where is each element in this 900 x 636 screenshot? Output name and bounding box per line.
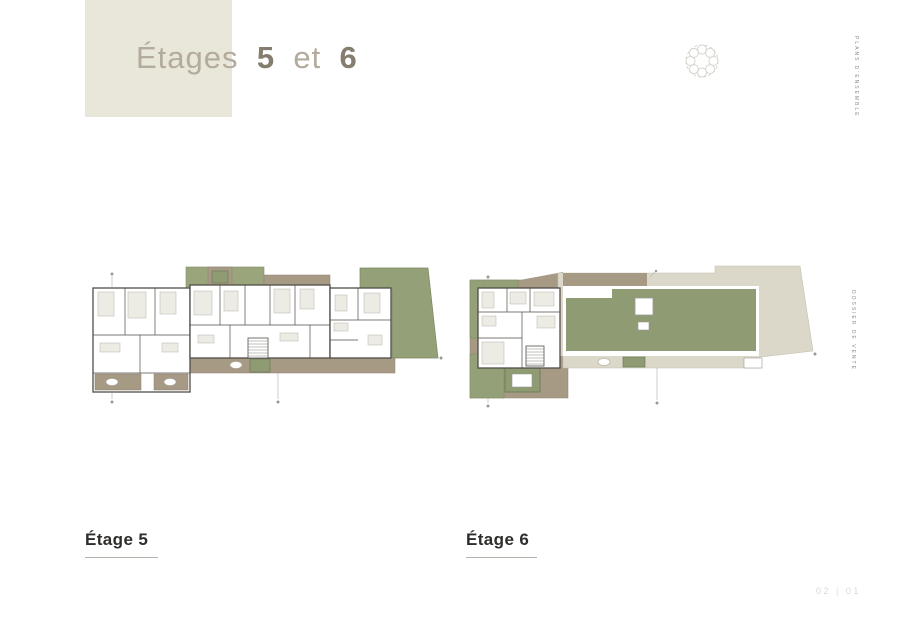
plan-caption-etage-6-text: Étage 6 — [466, 530, 529, 549]
side-label-top: PLANS D'ENSEMBLE — [853, 36, 859, 106]
page-title-number-1: 5 — [257, 40, 275, 75]
floor-plan-etage-5 — [80, 245, 445, 410]
wreath-tree-ornament-icon — [680, 39, 724, 83]
plan-caption-etage-5-text: Étage 5 — [85, 530, 148, 549]
page-title-word: Étages — [136, 40, 239, 75]
page-title-connector: et — [293, 40, 321, 75]
plan-caption-etage-5-rule — [85, 557, 158, 558]
green-roof-6 — [558, 266, 813, 368]
side-label-middle: DOSSIER DE VENTE — [850, 290, 856, 356]
brochure-page: Étages 5 et 6 PLANS D'ENSEMBLE DOSSIER D… — [0, 0, 900, 636]
page-title-number-2: 6 — [340, 40, 358, 75]
floor-plan-etage-6 — [462, 250, 822, 410]
plan-caption-etage-6-rule — [466, 557, 537, 558]
plan-caption-etage-5: Étage 5 — [85, 530, 158, 558]
page-title: Étages 5 et 6 — [136, 36, 358, 80]
stair-core-5 — [248, 338, 268, 358]
penthouse-6 — [478, 288, 560, 368]
plan-caption-etage-6: Étage 6 — [466, 530, 537, 558]
page-marker: 02 | 01 — [816, 586, 861, 596]
